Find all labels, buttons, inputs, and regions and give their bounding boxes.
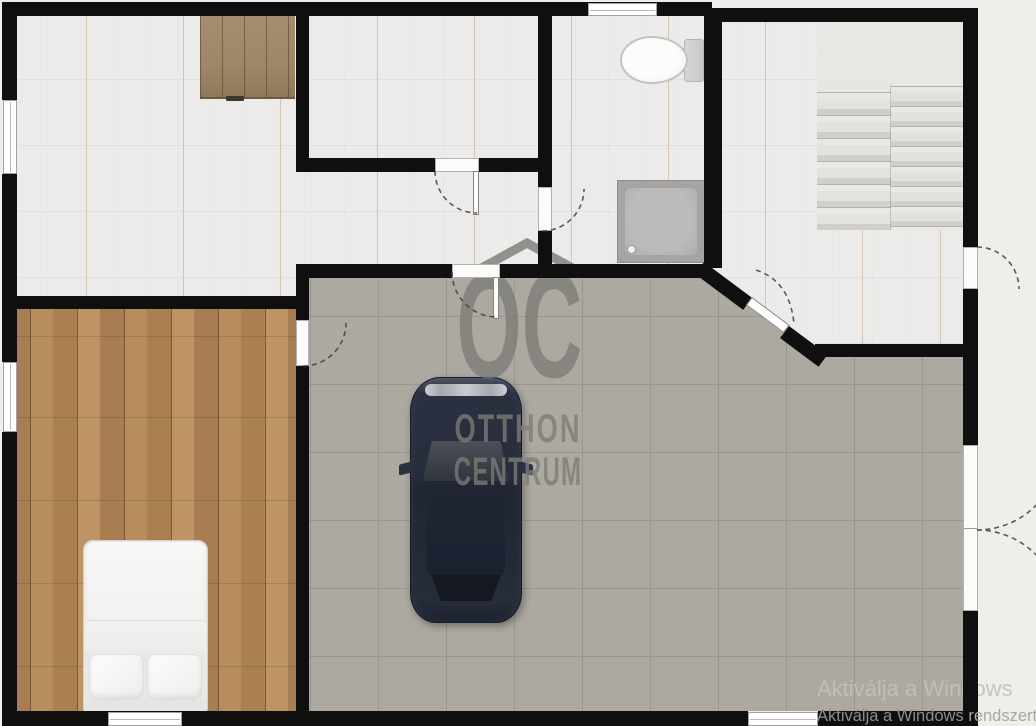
door-hall-right-arc bbox=[977, 247, 1019, 289]
wall-bottom-right bbox=[818, 711, 978, 726]
wall-left-lower bbox=[2, 432, 17, 713]
toilet-bowl bbox=[620, 36, 688, 84]
wall-bedroom-right-upper bbox=[296, 264, 309, 320]
window-bathroom-top bbox=[588, 3, 657, 16]
bed-blanket-fold bbox=[85, 620, 206, 654]
car-rear-window bbox=[431, 575, 501, 601]
door-double-arc-top bbox=[977, 447, 1036, 530]
door-double-arc-bottom bbox=[977, 530, 1036, 613]
wardrobe bbox=[200, 15, 295, 99]
window-bedroom-bottom bbox=[108, 712, 182, 726]
car-roof bbox=[427, 481, 505, 575]
shower bbox=[617, 180, 705, 263]
shower-drain bbox=[628, 246, 635, 253]
wall-bedroom-top bbox=[2, 296, 309, 309]
shower-tray bbox=[625, 188, 697, 255]
stair-divider bbox=[890, 84, 891, 230]
wall-right-upper bbox=[963, 8, 978, 247]
window-living-bottom bbox=[748, 712, 818, 726]
wall-left-middle bbox=[2, 174, 17, 362]
pillow-left bbox=[89, 654, 144, 700]
door-room2-threshold bbox=[435, 158, 479, 172]
wall-room2-bottom-a bbox=[296, 158, 435, 172]
floorplan-canvas: Aktiválja a Windows OC OTTHON CENTRUM bbox=[0, 0, 1036, 726]
wall-bathroom-left-upper bbox=[538, 14, 552, 187]
wall-right-lower bbox=[963, 611, 978, 726]
stair-flight-left bbox=[817, 92, 891, 230]
stair-flight-right bbox=[891, 86, 963, 230]
door-room2-leaf bbox=[473, 171, 479, 215]
wall-top-right bbox=[706, 8, 978, 22]
door-living-top-threshold bbox=[452, 264, 500, 278]
door-hall-right-threshold bbox=[963, 247, 978, 289]
door-living-top-leaf bbox=[493, 277, 499, 319]
wall-living-top-b bbox=[500, 264, 712, 278]
double-bed bbox=[83, 540, 208, 712]
door-bathroom-threshold bbox=[538, 187, 552, 231]
staircase bbox=[817, 22, 963, 230]
window-room1-left bbox=[3, 100, 17, 174]
wall-right-middle bbox=[963, 289, 978, 445]
window-bedroom-left bbox=[3, 362, 17, 432]
wall-left-upper bbox=[2, 2, 17, 100]
wall-bedroom-right-lower bbox=[296, 366, 309, 713]
suv-car bbox=[399, 377, 533, 623]
wall-living-top-a bbox=[296, 264, 452, 278]
wall-hall-left bbox=[704, 14, 722, 268]
door-double-divider bbox=[964, 528, 977, 529]
wall-hall-bottom bbox=[815, 344, 965, 357]
wall-room1-room2 bbox=[296, 14, 309, 160]
toilet bbox=[618, 34, 710, 86]
door-bedroom-threshold bbox=[296, 320, 309, 366]
car-windshield bbox=[423, 441, 509, 481]
pillow-right bbox=[147, 654, 202, 700]
car-headlights bbox=[425, 384, 507, 396]
